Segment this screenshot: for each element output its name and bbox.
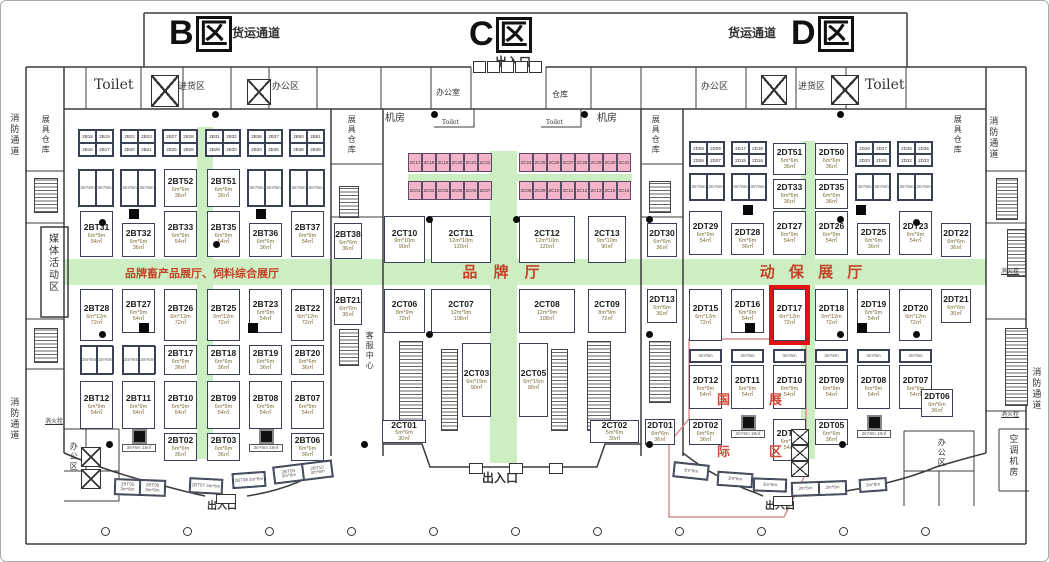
booth-2CT08: 2CT0812m*9m108㎡ — [519, 289, 575, 333]
intl-zone-char-2: 展 — [769, 389, 782, 408]
area-label: 展具仓库 — [41, 115, 50, 155]
booth-area: 54㎡ — [826, 392, 838, 398]
booth-2BT25: 2BT256m*12m72㎡ — [207, 289, 240, 341]
booth-cell: 2B27 — [163, 130, 180, 143]
booth-area: 72㎡ — [601, 316, 613, 322]
booth-area: 54㎡ — [742, 392, 754, 398]
booth-cell: 2D33 — [915, 154, 932, 166]
booth-area: 54㎡ — [260, 410, 272, 416]
booth-area: 54㎡ — [742, 316, 754, 322]
booth-pair: 3m*6m3m*6m — [855, 173, 891, 201]
column-icon — [867, 415, 882, 430]
booth-area: 36㎡ — [218, 452, 230, 458]
area-label: 展具仓库 — [347, 115, 356, 155]
elevator-icon — [151, 75, 179, 107]
booth-area: 36㎡ — [826, 199, 838, 205]
booth-2C19: 2C19 — [436, 153, 450, 172]
door-icon — [216, 494, 236, 504]
booth-id: 2BT10 — [168, 394, 194, 403]
booth-area: 54㎡ — [133, 316, 145, 322]
elevator-icon — [791, 429, 809, 445]
booth-2C09: 2C09 — [533, 181, 547, 200]
booth-area: 36㎡ — [342, 246, 354, 252]
intl-zone-char-4: 区 — [769, 441, 782, 460]
booth-cell: 3m*6m — [819, 481, 846, 495]
booth-2BT52: 2BT526m*6m36㎡ — [164, 169, 197, 207]
booth-cell: 2B35 — [265, 143, 282, 156]
booth-angled: 2BT07 3m*6m — [189, 477, 224, 495]
hall-banner-b: 品牌畜产品展厅、饲料综合展厅 — [93, 265, 311, 281]
booth-id: 2BT36 — [253, 229, 279, 238]
booth-area: 30㎡ — [609, 436, 621, 442]
booth-2BT12: 2BT126m*9m54㎡ — [80, 381, 113, 429]
elevator-icon — [761, 75, 787, 105]
column-dot — [646, 331, 653, 338]
booth-area: 36㎡ — [218, 193, 230, 199]
area-label: 出入口 — [482, 472, 518, 486]
booth-id: 2BT33 — [168, 223, 194, 232]
booth-id: 2CT13 — [594, 229, 620, 238]
booth-area: 54㎡ — [302, 410, 314, 416]
booth-cell: 3m*6m — [915, 174, 932, 200]
booth-cell: 3m*6m — [690, 174, 707, 200]
booth-id: 2DT51 — [777, 148, 803, 157]
area-label: 消火栓 — [45, 419, 63, 426]
area-label: 办公区 — [272, 81, 299, 91]
column-dot — [99, 219, 106, 226]
booth-2BT09: 2BT096m*9m54㎡ — [207, 381, 240, 429]
column-dot — [361, 441, 368, 448]
booth-2C02: 2C02 — [422, 181, 436, 200]
booth-cell: 2D17 — [732, 142, 749, 154]
booth-cell: 3m*6m — [873, 174, 890, 200]
booth-id: 2BT17 — [168, 349, 194, 358]
booth-area: 36㎡ — [950, 245, 962, 251]
booth-cell: 2BT10 3m*6m — [302, 461, 333, 480]
booth-cell: 3m*6m 18㎡ — [731, 430, 765, 438]
area-label: 办公区 — [69, 442, 78, 472]
column-booth-stack: 3m*6m 18㎡ — [857, 415, 891, 438]
column-dot — [106, 441, 113, 448]
booth-cell: 3m*6m — [774, 350, 805, 362]
booth-pair: 3m*6m3m*6m — [120, 169, 156, 207]
booth-area: 36㎡ — [175, 452, 187, 458]
booth-2BT22: 2BT226m*12m72㎡ — [291, 289, 324, 341]
booth-area: 36㎡ — [826, 164, 838, 170]
booth-2BT19: 2BT196m*6m36㎡ — [249, 345, 282, 375]
booth-grid: 2B502B512B382B39 — [289, 129, 325, 157]
booth-id: 2BT31 — [84, 223, 110, 232]
booth-cell: 3m*6m — [856, 174, 873, 200]
booth-cell: 2D08 — [690, 142, 707, 154]
booth-area: 72㎡ — [700, 320, 712, 326]
booth-id: 2BT21 — [335, 296, 361, 305]
booth-pair: 3m*6m3m*6m — [731, 173, 767, 201]
booth-area: 54㎡ — [868, 316, 880, 322]
booth-id: 2DT06 — [924, 392, 950, 401]
booth-id: 2BT25 — [211, 304, 237, 313]
column-dot — [431, 111, 438, 118]
booth-2BT08: 2BT086m*9m54㎡ — [249, 381, 282, 429]
booth-cell: 3m*6m — [79, 170, 96, 206]
booth-area: 36㎡ — [218, 365, 230, 371]
booth-2C05: 2C05 — [450, 181, 464, 200]
booth-area: 90㎡ — [399, 244, 411, 250]
booth-2C22: 2C22 — [478, 153, 492, 172]
column-dot — [212, 111, 219, 118]
booth-pair: 3m*6m3m*6m — [689, 173, 725, 201]
booth-2C07: 2C07 — [478, 181, 492, 200]
booth-2DT21: 2DT216m*6m36㎡ — [941, 289, 971, 323]
area-label: 消防通道 — [9, 113, 19, 157]
booth-id: 2DT21 — [943, 295, 969, 304]
booth-2CT01: 2CT015m*6m30㎡ — [382, 420, 426, 443]
stairs-icon — [587, 341, 611, 431]
booth-2BT03: 2BT036m*6m36㎡ — [207, 433, 240, 461]
booth-id: 2BT12 — [84, 394, 110, 403]
booth-id: 2BT22 — [295, 304, 321, 313]
booth-2DT35: 2DT356m*6m36㎡ — [815, 179, 848, 209]
booth-id: 2BT02 — [168, 436, 194, 445]
booth-2C26: 2C26 — [547, 153, 561, 172]
booth-area: 36㎡ — [656, 311, 668, 317]
column-base — [265, 527, 274, 536]
booth-2C16: 2C16 — [617, 181, 631, 200]
area-label: 办公区 — [937, 438, 946, 468]
booth-area: 54㎡ — [910, 392, 922, 398]
elevator-icon — [791, 445, 809, 461]
booth-2C31: 2C31 — [617, 153, 631, 172]
booth-id: 2CT07 — [448, 300, 474, 309]
column-booth-stack: 3m*6m 18㎡ — [731, 415, 765, 438]
column-icon — [132, 429, 147, 444]
booth-2DT22: 2DT226m*6m36㎡ — [941, 223, 971, 257]
booth-area: 54㎡ — [826, 238, 838, 244]
booth-2BT10: 2BT106m*9m54㎡ — [164, 381, 197, 429]
booth-angled: 2BT05 3m*6m2BT06 3m*6m — [114, 478, 167, 497]
stairs-icon — [551, 349, 568, 431]
booth-cell: 3m*6m — [97, 346, 113, 374]
zone-c-letter: C — [469, 15, 494, 54]
booth-2C18: 2C18 — [422, 153, 436, 172]
booth-id: 2DT25 — [861, 228, 887, 237]
column-booth-stack: 3m*6m 18㎡ — [249, 429, 283, 452]
booth-2BT11: 2BT116m*9m54㎡ — [122, 381, 155, 429]
booth-id: 2BT20 — [295, 349, 321, 358]
area-label: 消防通道 — [988, 116, 998, 160]
booth-2C13: 2C13 — [589, 181, 603, 200]
booth-2DT29: 2DT296m*9m54㎡ — [689, 211, 722, 255]
booth-2DT33: 2DT336m*6m36㎡ — [773, 179, 806, 209]
booth-id: 2CT02 — [602, 421, 628, 430]
booth-cell: 2B18 — [79, 130, 96, 143]
booth-id: 2DT17 — [777, 304, 803, 313]
booth-id: 2DT20 — [903, 304, 929, 313]
booth-area: 54㎡ — [700, 238, 712, 244]
column-icon — [741, 415, 756, 430]
booth-pair: 3m*6m — [815, 349, 848, 363]
booth-id: 2CT09 — [594, 300, 620, 309]
door-icon — [501, 61, 514, 73]
booth-cell: 3m*6m — [707, 174, 724, 200]
booth-pair: 3m*6m — [689, 349, 722, 363]
booth-id: 2DT05 — [819, 421, 845, 430]
booth-cell: 3m*6m — [673, 462, 708, 479]
booth-id: 2BT27 — [126, 300, 152, 309]
booth-2C11: 2C11 — [561, 181, 575, 200]
booth-2BT38: 2BT386m*6m36㎡ — [334, 223, 362, 259]
booth-area: 72㎡ — [399, 316, 411, 322]
booth-grid: 2D082D092D062D07 — [689, 141, 725, 167]
booth-area: 72㎡ — [826, 320, 838, 326]
booth-2C06: 2C06 — [464, 181, 478, 200]
booth-2CT09: 2CT098m*9m72㎡ — [588, 289, 626, 333]
column-icon — [259, 429, 274, 444]
booth-area: 36㎡ — [784, 199, 796, 205]
booth-pair: 3m*6m — [773, 349, 806, 363]
booth-id: 2DT27 — [777, 222, 803, 231]
column-base — [183, 527, 192, 536]
booth-angled: 3m*6m — [859, 477, 888, 493]
booth-grid: 2D262D272D232D25 — [855, 141, 891, 167]
booth-area: 120㎡ — [454, 244, 469, 250]
elevator-icon — [81, 469, 101, 489]
stairs-icon — [649, 341, 671, 403]
booth-cell: 3m*6m — [732, 174, 749, 200]
booth-2DT11: 2DT116m*9m54㎡ — [731, 365, 764, 409]
area-label: 进货区 — [798, 81, 825, 91]
area-label: 展具仓库 — [651, 115, 660, 155]
booth-2DT23: 2DT236m*9m54㎡ — [899, 211, 932, 255]
booth-area: 36㎡ — [700, 437, 712, 443]
zone-b-letter: B — [169, 14, 194, 53]
zone-header-b: B 区 — [169, 14, 232, 53]
booth-2BT07: 2BT076m*9m54㎡ — [291, 381, 324, 429]
booth-area: 72㎡ — [784, 320, 796, 326]
booth-area: 54㎡ — [784, 238, 796, 244]
booth-area: 36㎡ — [133, 245, 145, 251]
booth-area: 36㎡ — [950, 311, 962, 317]
booth-cell: 2D15 — [732, 154, 749, 166]
booth-cell: 3m*6m — [900, 350, 931, 362]
door-icon — [469, 463, 483, 474]
booth-area: 54㎡ — [133, 410, 145, 416]
booth-cell: 3m*6m — [690, 350, 721, 362]
booth-grid: 2D352D362D322D33 — [897, 141, 933, 167]
booth-pair: 3m*6m — [731, 349, 764, 363]
zone-d-letter: D — [791, 14, 816, 53]
booth-grid: 2B222B232B202B21 — [120, 129, 156, 157]
booth-2C15: 2C15 — [603, 181, 617, 200]
booth-area: 36㎡ — [784, 164, 796, 170]
column-booth-stack: 3m*6m 18㎡ — [122, 429, 156, 452]
column-marker — [856, 205, 866, 215]
booth-id: 2DT50 — [819, 148, 845, 157]
booth-area: 90㎡ — [471, 385, 483, 391]
column-base — [593, 527, 602, 536]
booth-cell: 3m*6m — [307, 170, 324, 206]
booth-cell: 2B38 — [290, 143, 307, 156]
booth-id: 2BT35 — [211, 223, 237, 232]
booth-cell: 3m*6m — [139, 346, 155, 374]
booth-cell: 2B51 — [307, 130, 324, 143]
booth-cell: 2B32 — [223, 130, 240, 143]
stairs-icon — [34, 178, 58, 213]
booth-cell: 3m*6m — [792, 482, 819, 496]
column-base — [347, 527, 356, 536]
column-marker — [857, 323, 867, 333]
booth-id: 2CT05 — [521, 369, 547, 378]
booth-cell: 2B50 — [290, 130, 307, 143]
column-base — [921, 527, 930, 536]
booth-area: 54㎡ — [302, 239, 314, 245]
booth-cell: 2D09 — [707, 142, 724, 154]
booth-area: 36㎡ — [656, 245, 668, 251]
booth-id: 2DT33 — [777, 183, 803, 192]
booth-2C17: 2C17 — [408, 153, 422, 172]
booth-2C25: 2C25 — [533, 153, 547, 172]
column-dot — [837, 111, 844, 118]
booth-2DT17: 2DT176m*12m72㎡ — [773, 289, 806, 341]
booth-area: 54㎡ — [91, 410, 103, 416]
booth-cell: 2B28 — [180, 130, 197, 143]
booth-id: 2CT12 — [534, 229, 560, 238]
booth-area: 36㎡ — [826, 437, 838, 443]
booth-cell: 2BT08 3m*6m — [233, 472, 266, 488]
booth-cell: 3m*6m — [81, 346, 97, 374]
area-label: Toilet — [865, 77, 905, 93]
column-marker — [129, 209, 139, 219]
booth-2C28: 2C28 — [575, 153, 589, 172]
booth-2CT12: 2CT1212m*10m120㎡ — [519, 216, 575, 263]
booth-pair: 3m*6m3m*6m — [78, 169, 114, 207]
booth-id: 2DT11 — [735, 376, 760, 385]
booth-id: 2DT26 — [819, 222, 845, 231]
column-dot — [646, 216, 653, 223]
booth-2BT06: 2BT066m*6m36㎡ — [291, 433, 324, 461]
booth-2BT31: 2BT316m*9m54㎡ — [80, 211, 113, 257]
column-dot — [581, 111, 588, 118]
booth-area: 54㎡ — [868, 392, 880, 398]
column-dot — [426, 331, 433, 338]
booth-area: 36㎡ — [260, 365, 272, 371]
stairs-icon — [649, 181, 671, 213]
booth-cell: 3m*6m — [816, 350, 847, 362]
booth-area: 36㎡ — [654, 437, 666, 443]
elevator-icon — [831, 75, 859, 105]
booth-id: 2DT22 — [943, 229, 969, 238]
booth-2BT33: 2BT336m*9m54㎡ — [164, 211, 197, 257]
column-base — [757, 527, 766, 536]
booth-cell: 3m*6m — [121, 170, 138, 206]
booth-grid: 2B312B322B292B30 — [205, 129, 241, 157]
area-label: 货运通道 — [728, 27, 776, 41]
booth-id: 2BT18 — [211, 349, 237, 358]
booth-2CT05: 2CT056m*15m90㎡ — [519, 343, 548, 417]
area-label: 空调机房 — [1008, 434, 1018, 478]
booth-area: 54㎡ — [175, 239, 187, 245]
booth-area: 72㎡ — [910, 320, 922, 326]
column-base — [675, 527, 684, 536]
stairs-icon — [441, 349, 458, 431]
booth-cell: 2D25 — [873, 154, 890, 166]
booth-grid: 2D172D182D152D16 — [731, 141, 767, 167]
booth-2BT02: 2BT026m*6m36㎡ — [164, 433, 197, 461]
booth-pair: 3m*6m3m*6m — [247, 169, 283, 207]
area-label: 消火栓 — [1001, 412, 1019, 419]
booth-2DT06: 2DT066m*6m36㎡ — [921, 389, 953, 417]
column-dot — [646, 441, 653, 448]
booth-pair: 3m*6m3m*6m — [80, 345, 113, 375]
booth-angled: 2BT08 3m*6m — [231, 471, 266, 489]
booth-id: 2BT11 — [126, 394, 151, 403]
booth-id: 2BT28 — [84, 304, 110, 313]
booth-cell: 3m*6m — [265, 170, 282, 206]
column-marker — [139, 323, 149, 333]
column-base — [511, 527, 520, 536]
booth-cell: 2B23 — [138, 130, 155, 143]
elevator-icon — [81, 447, 101, 467]
booth-2BT26: 2BT266m*12m72㎡ — [164, 289, 197, 341]
stairs-icon — [399, 341, 423, 431]
column-base — [839, 527, 848, 536]
booth-2BT21: 2BT216m*6m36㎡ — [334, 289, 362, 325]
booth-2C27: 2C27 — [561, 153, 575, 172]
stairs-icon — [34, 328, 58, 363]
area-label: 消防通道 — [9, 397, 19, 441]
booth-id: 2BT06 — [295, 436, 321, 445]
booth-cell: 2B36 — [248, 130, 265, 143]
intl-zone-char-1: 国 — [717, 389, 730, 408]
booth-cell: 3m*6m — [248, 170, 265, 206]
booth-cell: 2B25 — [163, 143, 180, 156]
booth-cell: 3m*6m 18㎡ — [249, 444, 283, 452]
column-dot — [837, 216, 844, 223]
booth-area: 30㎡ — [398, 436, 410, 442]
booth-cell: 3m*6m — [898, 174, 915, 200]
column-dot — [837, 331, 844, 338]
booth-grid: 2B182B192B162B17 — [78, 129, 114, 157]
booth-2BT17: 2BT176m*6m36㎡ — [164, 345, 197, 375]
booth-id: 2CT11 — [448, 229, 473, 238]
booth-area: 54㎡ — [218, 410, 230, 416]
booth-area: 36㎡ — [260, 245, 272, 251]
booth-2CT11: 2CT1112m*10m120㎡ — [431, 216, 491, 263]
booth-cell: 2B16 — [79, 143, 96, 156]
booth-grid: 2B362B372B332B35 — [247, 129, 283, 157]
booth-area: 54㎡ — [910, 238, 922, 244]
booth-area: 54㎡ — [91, 239, 103, 245]
booth-angled: 3m*6m — [753, 477, 787, 492]
booth-cell: 3m*6m — [860, 478, 887, 492]
booth-area: 72㎡ — [175, 320, 187, 326]
booth-2C10: 2C10 — [547, 181, 561, 200]
area-label: 机房 — [597, 113, 617, 125]
stairs-icon — [996, 178, 1018, 220]
booth-id: 2DT29 — [693, 222, 719, 231]
booth-cell: 2B21 — [138, 143, 155, 156]
booth-area: 36㎡ — [342, 312, 354, 318]
booth-pair: 3m*6m3m*6m — [897, 173, 933, 201]
door-icon — [473, 61, 486, 73]
booth-cell: 3m*6m — [290, 170, 307, 206]
booth-2BT37: 2BT376m*9m54㎡ — [291, 211, 324, 257]
zone-c-char: 区 — [496, 17, 532, 53]
booth-area: 36㎡ — [175, 193, 187, 199]
booth-area: 72㎡ — [218, 320, 230, 326]
area-label: Toilet — [442, 120, 459, 127]
booth-2BT32: 2BT326m*6m36㎡ — [122, 223, 155, 257]
